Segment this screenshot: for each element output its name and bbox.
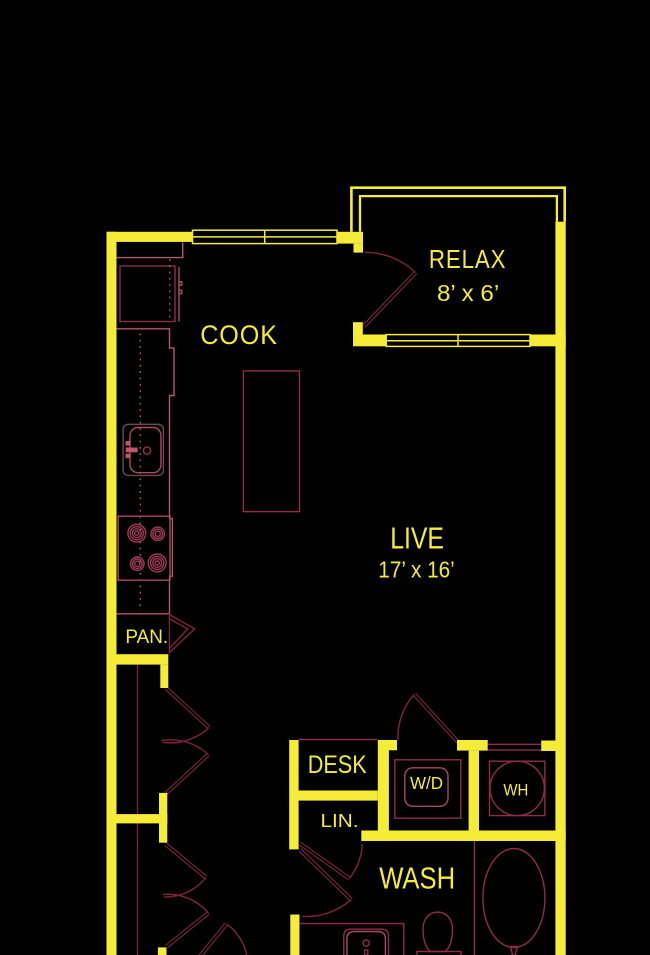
- svg-text:WH: WH: [503, 781, 528, 799]
- svg-text:PAN.: PAN.: [125, 627, 168, 648]
- svg-text:COOK: COOK: [200, 320, 278, 350]
- svg-text:DESK: DESK: [308, 751, 367, 779]
- svg-text:RELAX: RELAX: [429, 246, 507, 274]
- svg-text:8’ x 6’: 8’ x 6’: [437, 280, 499, 306]
- svg-text:LIN.: LIN.: [321, 811, 359, 831]
- svg-text:W/D: W/D: [410, 773, 443, 793]
- svg-text:17’ x 16’: 17’ x 16’: [378, 556, 455, 582]
- svg-text:WASH: WASH: [379, 862, 455, 896]
- svg-text:LIVE: LIVE: [390, 520, 444, 555]
